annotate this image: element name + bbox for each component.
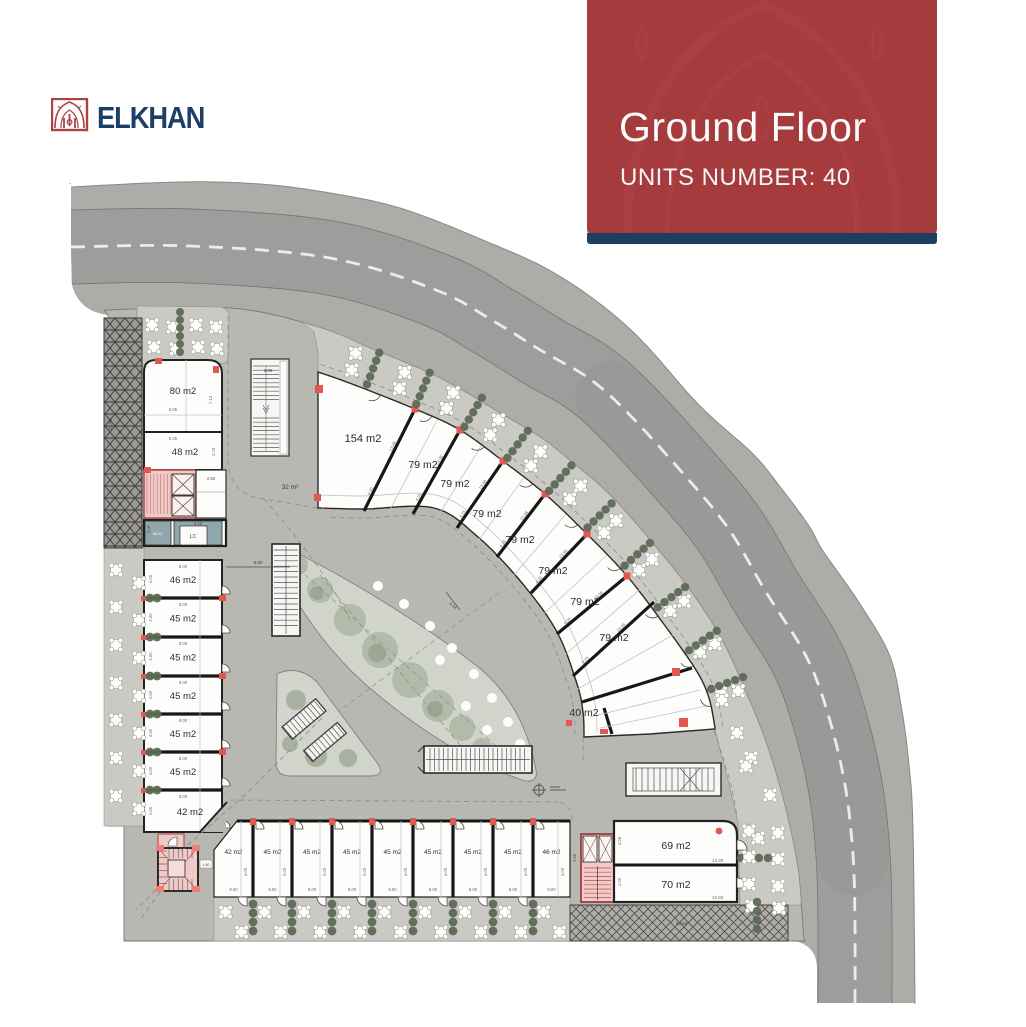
svg-text:4.00: 4.00 [560, 867, 565, 876]
svg-text:8.00: 8.00 [179, 602, 188, 607]
svg-text:1.80: 1.80 [203, 863, 210, 867]
svg-text:45 m2: 45 m2 [303, 849, 321, 856]
svg-text:45 m2: 45 m2 [424, 849, 442, 856]
svg-text:8.00: 8.00 [179, 794, 188, 799]
svg-text:4.00: 4.00 [483, 867, 488, 876]
svg-text:8.00: 8.00 [469, 887, 478, 892]
svg-text:12.60: 12.60 [712, 895, 724, 900]
svg-text:4.42: 4.42 [194, 521, 203, 526]
svg-text:4.00: 4.00 [148, 728, 153, 737]
svg-text:8.00: 8.00 [429, 887, 438, 892]
svg-text:79 m2: 79 m2 [599, 632, 628, 644]
svg-text:3.06: 3.06 [264, 368, 273, 373]
svg-text:8.00: 8.00 [229, 887, 238, 892]
svg-text:45 m2: 45 m2 [263, 849, 281, 856]
svg-text:45 m2: 45 m2 [170, 691, 196, 702]
svg-text:8.00: 8.00 [179, 756, 188, 761]
svg-text:45 m2: 45 m2 [170, 614, 196, 625]
svg-text:4.00: 4.00 [148, 574, 153, 583]
svg-text:23.62: 23.62 [676, 921, 688, 926]
svg-text:4.00: 4.00 [617, 877, 622, 886]
svg-text:8.00: 8.00 [179, 564, 188, 569]
svg-text:45 m2: 45 m2 [504, 849, 522, 856]
svg-text:4.00: 4.00 [322, 867, 327, 876]
svg-text:79 m2: 79 m2 [440, 478, 469, 490]
svg-text:LC: LC [190, 534, 197, 540]
svg-text:8.00: 8.00 [179, 680, 188, 685]
svg-text:7.13: 7.13 [208, 395, 213, 404]
svg-text:2.50: 2.50 [572, 853, 577, 862]
svg-text:8.00: 8.00 [547, 887, 556, 892]
svg-text:12.30: 12.30 [712, 858, 724, 863]
svg-text:45 m2: 45 m2 [464, 849, 482, 856]
svg-text:8.00: 8.00 [388, 887, 397, 892]
svg-text:79 m2: 79 m2 [472, 508, 501, 520]
svg-text:4.08: 4.08 [617, 836, 622, 845]
svg-text:2.83: 2.83 [207, 476, 216, 481]
svg-text:8.00: 8.00 [308, 887, 317, 892]
svg-text:BLOC: BLOC [153, 532, 163, 536]
svg-text:8.00: 8.00 [179, 718, 188, 723]
svg-text:42 m2: 42 m2 [177, 807, 203, 818]
svg-text:45 m2: 45 m2 [170, 729, 196, 740]
svg-text:8.00: 8.00 [268, 887, 277, 892]
svg-text:4.23: 4.23 [211, 447, 216, 456]
svg-text:154 m2: 154 m2 [345, 433, 382, 445]
svg-text:8.00: 8.00 [509, 887, 518, 892]
svg-text:4.00: 4.00 [148, 613, 153, 622]
svg-text:4.00: 4.00 [362, 867, 367, 876]
svg-text:80 m2: 80 m2 [170, 386, 196, 397]
svg-text:4.00: 4.00 [282, 867, 287, 876]
svg-text:2.06: 2.06 [146, 524, 151, 533]
svg-text:4.00: 4.00 [148, 806, 153, 815]
svg-text:45 m2: 45 m2 [383, 849, 401, 856]
svg-text:48 m2: 48 m2 [172, 447, 198, 458]
svg-text:79 m2: 79 m2 [408, 459, 437, 471]
svg-text:45 m2: 45 m2 [170, 767, 196, 778]
svg-text:69 m2: 69 m2 [661, 840, 690, 852]
svg-text:21.90: 21.90 [108, 418, 113, 430]
svg-text:46 m2: 46 m2 [170, 575, 196, 586]
svg-text:4.00: 4.00 [148, 766, 153, 775]
svg-text:42 m2: 42 m2 [224, 849, 242, 856]
svg-text:4.00: 4.00 [148, 652, 153, 661]
svg-text:79 m2: 79 m2 [538, 565, 567, 577]
svg-text:79 m2: 79 m2 [505, 534, 534, 546]
svg-text:4.00: 4.00 [148, 690, 153, 699]
svg-text:4.00: 4.00 [523, 867, 528, 876]
svg-text:4.00: 4.00 [403, 867, 408, 876]
svg-text:45 m2: 45 m2 [170, 653, 196, 664]
svg-text:32 m²: 32 m² [282, 484, 299, 491]
svg-text:6.25: 6.25 [169, 436, 178, 441]
svg-text:8.00: 8.00 [348, 887, 357, 892]
svg-text:6.05: 6.05 [169, 407, 178, 412]
svg-text:4.00: 4.00 [443, 867, 448, 876]
svg-text:5.80: 5.80 [254, 560, 263, 565]
svg-text:70 m2: 70 m2 [661, 879, 690, 891]
svg-text:8.00: 8.00 [179, 641, 188, 646]
svg-text:45 m2: 45 m2 [343, 849, 361, 856]
svg-text:4.00: 4.00 [243, 867, 248, 876]
